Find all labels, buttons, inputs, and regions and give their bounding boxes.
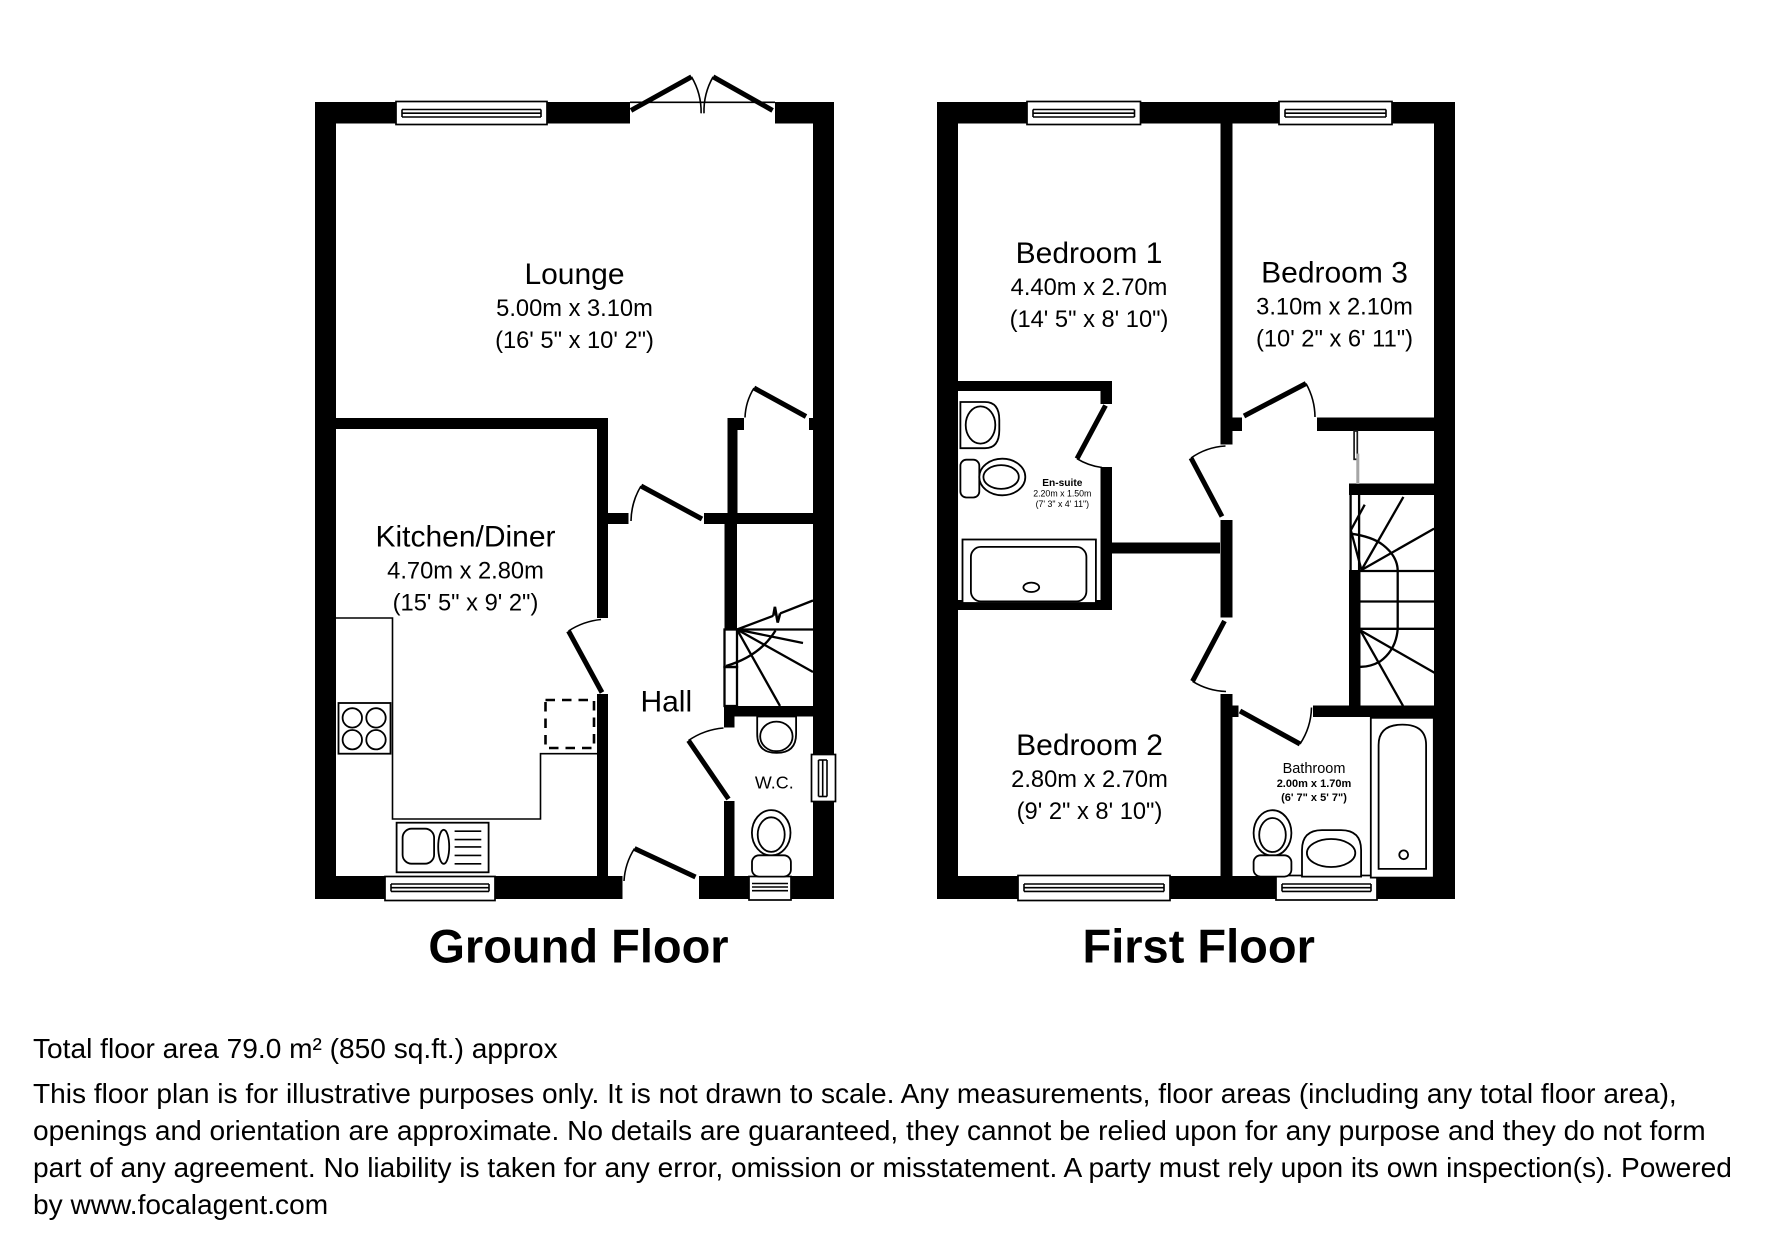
svg-text:Total floor area 79.0 m² (850: Total floor area 79.0 m² (850 sq.ft.) ap… (33, 1033, 558, 1064)
svg-text:4.70m x 2.80m: 4.70m x 2.80m (387, 559, 544, 585)
svg-text:4.40m x 2.70m: 4.40m x 2.70m (1011, 275, 1168, 301)
svg-text:This floor plan is for illustr: This floor plan is for illustrative purp… (33, 1078, 1677, 1109)
svg-text:(6' 7" x 5' 7"): (6' 7" x 5' 7") (1281, 792, 1347, 804)
svg-text:part of any agreement. No liab: part of any agreement. No liability is t… (33, 1152, 1732, 1183)
svg-text:W.C.: W.C. (755, 772, 794, 792)
svg-text:(15' 5" x 9' 2"): (15' 5" x 9' 2") (393, 591, 539, 617)
svg-text:3.10m x 2.10m: 3.10m x 2.10m (1256, 295, 1413, 321)
svg-text:(10' 2" x 6' 11"): (10' 2" x 6' 11") (1256, 327, 1413, 353)
svg-text:Kitchen/Diner: Kitchen/Diner (375, 521, 555, 554)
svg-text:(7' 3" x 4' 11"): (7' 3" x 4' 11") (1036, 499, 1090, 509)
svg-text:Bathroom: Bathroom (1283, 761, 1346, 777)
svg-text:(14' 5" x 8' 10"): (14' 5" x 8' 10") (1010, 307, 1169, 333)
svg-text:Hall: Hall (640, 686, 692, 719)
svg-text:by www.focalagent.com: by www.focalagent.com (33, 1189, 328, 1220)
svg-text:(16' 5" x 10' 2"): (16' 5" x 10' 2") (495, 328, 654, 354)
svg-text:openings and orientation are a: openings and orientation are approximate… (33, 1115, 1706, 1146)
svg-text:2.00m x 1.70m: 2.00m x 1.70m (1277, 778, 1352, 790)
svg-text:5.00m x 3.10m: 5.00m x 3.10m (496, 296, 653, 322)
svg-text:Bedroom 2: Bedroom 2 (1016, 729, 1163, 762)
svg-text:Ground Floor: Ground Floor (428, 919, 728, 972)
svg-text:2.80m x 2.70m: 2.80m x 2.70m (1011, 767, 1168, 793)
svg-text:(9' 2" x 8' 10"): (9' 2" x 8' 10") (1017, 799, 1163, 825)
svg-text:Bedroom 1: Bedroom 1 (1016, 237, 1163, 270)
svg-text:Bedroom 3: Bedroom 3 (1261, 257, 1408, 290)
svg-text:En-suite: En-suite (1042, 478, 1083, 489)
svg-text:2.20m x 1.50m: 2.20m x 1.50m (1033, 489, 1091, 499)
svg-text:Lounge: Lounge (524, 258, 624, 291)
svg-text:First Floor: First Floor (1083, 919, 1315, 972)
